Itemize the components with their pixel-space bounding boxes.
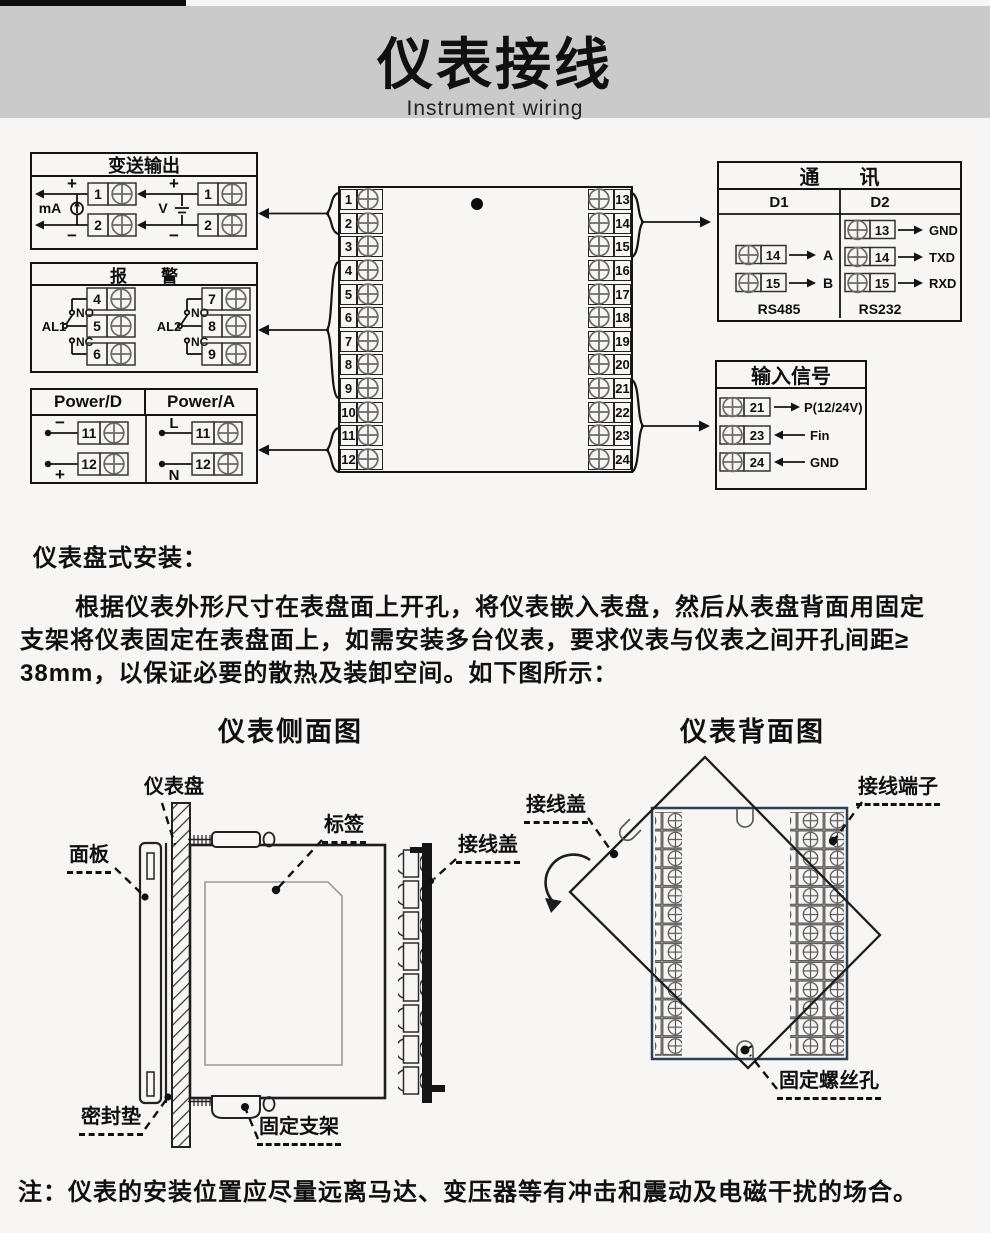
arrow-icon xyxy=(791,403,800,412)
arrow-to-power-box xyxy=(258,445,269,456)
input-signal-circuit: 21 P(12/24V) 23 Fin 24 G xyxy=(717,389,865,488)
screw-terminal-icon xyxy=(739,274,758,293)
input-signal-p: P(12/24V) xyxy=(804,400,863,415)
cover-edge-tab xyxy=(620,819,641,840)
page-title: 仪表接线 xyxy=(0,20,990,101)
screw-terminal-icon xyxy=(723,453,742,472)
arrow-icon xyxy=(914,226,923,235)
panel-board-label: 仪表盘 xyxy=(144,770,204,799)
rs232-terminal-14: 14 xyxy=(875,250,890,265)
comm-d1-header: D1 xyxy=(769,194,788,211)
screw-terminal-icon xyxy=(848,274,867,293)
input-signal-box: 输入信号 21 P(12/24V) 23 Fin xyxy=(715,360,867,490)
arrow-to-transmitter-box xyxy=(258,208,269,219)
bottom-note: 注：仪表的安装位置应尽量远离马达、变压器等有冲击和震动及电磁干扰的场合。 xyxy=(18,1172,918,1207)
rs232-signal-txd: TXD xyxy=(929,250,955,265)
install-line-1: 根据仪表外形尺寸在表盘面上开孔，将仪表嵌入表盘，然后从表盘背面用固定 xyxy=(75,587,925,622)
install-line-3: 38mm，以保证必要的散热及装卸空间。如下图所示： xyxy=(20,653,618,688)
screw-terminal-icon xyxy=(739,246,758,265)
instrument-body xyxy=(190,845,385,1098)
terminal-stack-right-outer xyxy=(817,812,844,1056)
wiring-cover-label-back: 接线盖 xyxy=(524,788,588,824)
input-signal-gnd: GND xyxy=(810,455,839,470)
install-line-2: 支架将仪表固定在表盘面上，如需安装多台仪表，要求仪表与仪表之间开孔间距≥ xyxy=(20,620,909,655)
input-terminal-23: 23 xyxy=(750,428,764,443)
rs485-label: RS485 xyxy=(758,301,801,317)
side-view-drawing xyxy=(60,755,470,1155)
front-bezel xyxy=(140,843,166,1103)
right-arrows xyxy=(641,217,711,432)
back-view-caption: 仪表背面图 xyxy=(680,710,825,749)
bracket-dot xyxy=(241,1103,249,1111)
rs485-rows: 14 A 15 B RS485 xyxy=(736,246,833,318)
title-banner: 仪表接线 Instrument wiring xyxy=(0,6,990,118)
manual-page: 仪表接线 Instrument wiring 变送输出 + − mA 1 xyxy=(0,0,990,1233)
input-row-23: 23 Fin xyxy=(720,426,830,445)
comm-circuit: D1 D2 14 A 15 B RS485 xyxy=(719,190,960,318)
wiring-terminals-label: 接线端子 xyxy=(856,770,940,806)
screw-terminal-icon xyxy=(848,221,867,240)
rs232-rows: 13 GND 14 TXD 15 RXD RS232 xyxy=(845,221,958,318)
rs232-label: RS232 xyxy=(859,301,902,317)
rs232-terminal-15: 15 xyxy=(875,276,889,291)
arrow-to-alarm-box xyxy=(258,325,269,336)
screw-terminal-icon xyxy=(848,248,867,267)
top-tab xyxy=(737,809,753,827)
left-braces xyxy=(327,193,338,472)
rs232-signal-gnd: GND xyxy=(929,223,958,238)
rear-terminal-stack xyxy=(398,848,422,1096)
input-terminal-21: 21 xyxy=(750,400,764,415)
arrow-icon xyxy=(807,279,816,288)
front-panel-label: 面板 xyxy=(67,838,111,874)
install-heading: 仪表盘式安装： xyxy=(33,538,208,573)
arrow-icon xyxy=(807,251,816,260)
screw-terminal-icon xyxy=(723,398,742,417)
rs485-signal-a: A xyxy=(823,247,833,263)
label-area xyxy=(205,882,342,1065)
page-subtitle: Instrument wiring xyxy=(0,97,990,121)
comm-box: 通 讯 D1 D2 14 A 15 B RS485 xyxy=(717,161,962,322)
input-row-24: 24 GND xyxy=(720,453,839,472)
arrow-icon xyxy=(914,279,923,288)
comm-d2-header: D2 xyxy=(870,194,889,211)
fixing-screw-hole-label: 固定螺丝孔 xyxy=(777,1064,881,1100)
terminal-stack-left xyxy=(655,812,682,1056)
arrow-icon xyxy=(914,253,923,262)
input-signal-fin: Fin xyxy=(810,428,830,443)
rs485-terminal-15: 15 xyxy=(766,276,780,291)
input-row-21: 21 P(12/24V) xyxy=(720,398,863,417)
arrow-icon xyxy=(774,431,783,440)
rs232-signal-rxd: RXD xyxy=(929,276,956,291)
tag-label: 标签 xyxy=(322,808,366,844)
comm-title: 通 讯 xyxy=(719,163,960,190)
input-terminal-24: 24 xyxy=(750,455,765,470)
rs232-terminal-13: 13 xyxy=(875,223,889,238)
side-view-caption: 仪表侧面图 xyxy=(218,710,363,749)
right-braces xyxy=(632,193,643,472)
gasket-label: 密封垫 xyxy=(79,1100,143,1136)
panel-wall-hatched xyxy=(172,803,190,1147)
arrow-to-input-box xyxy=(699,421,710,432)
rs485-terminal-14: 14 xyxy=(766,248,781,263)
rs485-signal-b: B xyxy=(823,275,833,291)
input-signal-title: 输入信号 xyxy=(717,362,865,389)
fixing-bracket-label: 固定支架 xyxy=(257,1110,341,1146)
arrow-to-comm-box xyxy=(700,217,711,228)
left-arrows xyxy=(258,208,329,456)
screw-terminal-icon xyxy=(723,426,742,445)
arrow-icon xyxy=(774,458,783,467)
